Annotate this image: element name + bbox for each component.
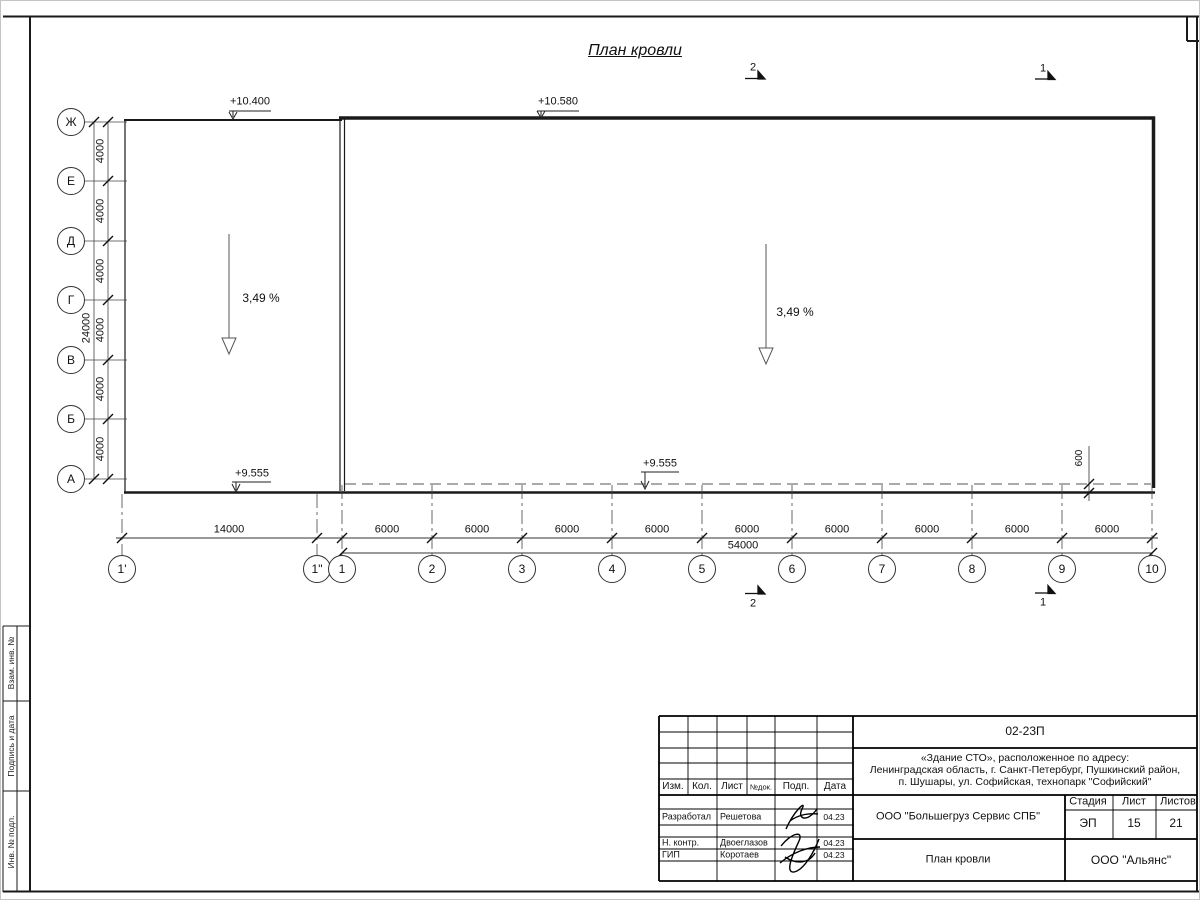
col-axis-label: 8 xyxy=(969,563,976,575)
axis-grid-lines xyxy=(84,122,1152,556)
col-axis-label: 7 xyxy=(879,563,886,575)
dim-label: 6000 xyxy=(645,525,669,536)
dim-label: 6000 xyxy=(735,525,759,536)
sheets-value: 21 xyxy=(1169,817,1182,829)
col-axis-label: 1' xyxy=(118,563,127,575)
project-address-line: п. Шушары, ул. Софийская, технопарк "Соф… xyxy=(899,777,1152,788)
sidebar-label: Инв. № подл. xyxy=(7,816,16,869)
col-axis-label: 5 xyxy=(699,563,706,575)
col-axis-bubble: 4 xyxy=(598,555,626,583)
row-axis-bubble: Д xyxy=(57,227,85,255)
dim-label: 4000 xyxy=(96,377,107,401)
row-axis-label: Ж xyxy=(65,116,76,128)
stage-label: Стадия xyxy=(1069,797,1107,808)
sheet-value: 15 xyxy=(1127,817,1140,829)
tb-header-cell: №док. xyxy=(750,783,772,791)
tb-role: Разработал xyxy=(662,813,711,822)
tb-role: Н. контр. xyxy=(662,839,699,848)
row-axis-label: Д xyxy=(67,235,75,247)
page-title: План кровли xyxy=(588,43,682,59)
col-axis-label: 10 xyxy=(1145,563,1158,575)
elevation-label: +10.400 xyxy=(230,97,270,108)
col-axis-label: 3 xyxy=(519,563,526,575)
dim-label: 6000 xyxy=(1095,525,1119,536)
dim-label: 6000 xyxy=(825,525,849,536)
dim-label: 4000 xyxy=(96,139,107,163)
row-axis-label: Г xyxy=(68,294,75,306)
slope-arrows xyxy=(222,234,773,364)
col-axis-label: 1 xyxy=(339,563,346,575)
sheets-label: Листов xyxy=(1160,797,1196,808)
dim-label: 14000 xyxy=(214,525,245,536)
col-axis-bubble: 1" xyxy=(303,555,331,583)
section-mark-label: 2 xyxy=(750,599,756,610)
dimension-lines xyxy=(116,446,1158,553)
col-axis-bubble: 3 xyxy=(508,555,536,583)
col-axis-bubble: 1' xyxy=(108,555,136,583)
sheet-label: Лист xyxy=(1122,797,1146,808)
dim-label: 6000 xyxy=(465,525,489,536)
elevation-marks xyxy=(229,111,679,492)
dim-label: 6000 xyxy=(1005,525,1029,536)
dim-total-label: 54000 xyxy=(728,541,759,552)
tb-name: Коротаев xyxy=(720,851,759,860)
col-axis-bubble: 9 xyxy=(1048,555,1076,583)
tb-name: Решетова xyxy=(720,813,761,822)
col-axis-label: 1" xyxy=(312,563,323,575)
elevation-label: +9.555 xyxy=(235,469,269,480)
doc-number: 02-23П xyxy=(1005,725,1044,737)
section-mark-label: 2 xyxy=(750,63,756,74)
section-marks xyxy=(745,71,1055,594)
row-axis-bubble: Г xyxy=(57,286,85,314)
tb-header-cell: Изм. xyxy=(662,782,683,792)
col-axis-bubble: 10 xyxy=(1138,555,1166,583)
row-axis-bubble: Ж xyxy=(57,108,85,136)
col-axis-bubble: 8 xyxy=(958,555,986,583)
signature-scribbles xyxy=(780,805,820,872)
col-axis-bubble: 2 xyxy=(418,555,446,583)
project-address-line: Ленинградская область, г. Санкт-Петербур… xyxy=(870,765,1180,776)
section-mark-label: 1 xyxy=(1040,598,1046,609)
tb-role: ГИП xyxy=(662,851,680,860)
row-axis-label: А xyxy=(67,473,75,485)
dim-label: 6000 xyxy=(375,525,399,536)
col-axis-label: 9 xyxy=(1059,563,1066,575)
tb-header-cell: Дата xyxy=(824,782,846,792)
dim-label: 4000 xyxy=(96,437,107,461)
dim-label: 4000 xyxy=(96,259,107,283)
row-axis-bubble: Б xyxy=(57,405,85,433)
row-axis-bubble: Е xyxy=(57,167,85,195)
section-mark-label: 1 xyxy=(1040,64,1046,75)
row-axis-bubble: В xyxy=(57,346,85,374)
col-axis-bubble: 1 xyxy=(328,555,356,583)
dim-total-label: 24000 xyxy=(82,313,93,344)
col-axis-label: 2 xyxy=(429,563,436,575)
sidebar-label: Взам. инв. № xyxy=(7,637,16,690)
sidebar-label: Подпись и дата xyxy=(7,715,16,776)
org-name: ООО "Альянс" xyxy=(1091,854,1171,866)
tb-name: Двоеглазов xyxy=(720,839,768,848)
tb-date: 04.23 xyxy=(823,839,844,848)
row-axis-label: В xyxy=(67,354,75,366)
slope-label: 3,49 % xyxy=(776,306,813,318)
row-axis-bubble: А xyxy=(57,465,85,493)
tb-date: 04.23 xyxy=(823,851,844,860)
slope-label: 3,49 % xyxy=(242,292,279,304)
drawing-name: План кровли xyxy=(926,855,991,866)
tb-date: 04.23 xyxy=(823,813,844,822)
col-axis-bubble: 6 xyxy=(778,555,806,583)
elevation-label: +9.555 xyxy=(643,459,677,470)
col-axis-bubble: 5 xyxy=(688,555,716,583)
tb-header-cell: Лист xyxy=(721,782,743,792)
dim-label: 600 xyxy=(1075,450,1085,467)
col-axis-label: 4 xyxy=(609,563,616,575)
dim-label: 4000 xyxy=(96,318,107,342)
tb-header-cell: Кол. xyxy=(692,782,712,792)
dim-label: 4000 xyxy=(96,199,107,223)
col-axis-bubble: 7 xyxy=(868,555,896,583)
col-axis-label: 6 xyxy=(789,563,796,575)
elevation-label: +10.580 xyxy=(538,97,578,108)
drawing-sheet: План кровли Ж Е Д Г В Б А 4000 4000 4000… xyxy=(0,0,1200,900)
row-axis-label: Е xyxy=(67,175,75,187)
tb-header-cell: Подп. xyxy=(783,782,810,792)
dim-label: 6000 xyxy=(915,525,939,536)
company-name: ООО "Большегруз Сервис СПБ" xyxy=(876,812,1040,823)
dim-label: 6000 xyxy=(555,525,579,536)
project-address-line: «Здание СТО», расположенное по адресу: xyxy=(921,753,1129,764)
row-axis-label: Б xyxy=(67,413,75,425)
stage-value: ЭП xyxy=(1079,817,1096,829)
